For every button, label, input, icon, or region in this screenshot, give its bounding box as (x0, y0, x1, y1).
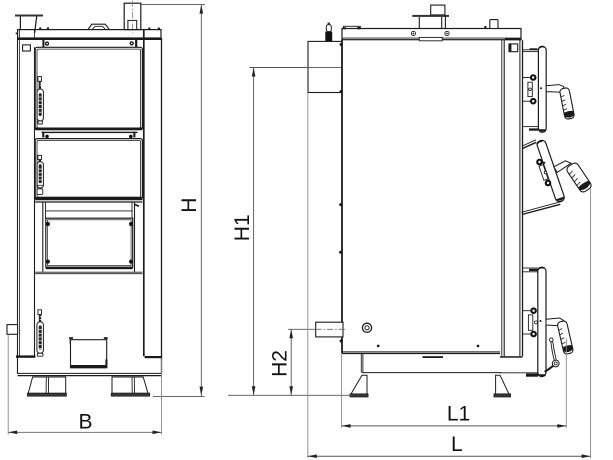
svg-text:B: B (78, 411, 92, 434)
svg-text:H: H (178, 198, 201, 213)
svg-text:L: L (451, 433, 463, 456)
svg-text:L1: L1 (447, 403, 470, 426)
svg-text:H1: H1 (231, 214, 254, 241)
svg-text:H2: H2 (269, 350, 292, 377)
